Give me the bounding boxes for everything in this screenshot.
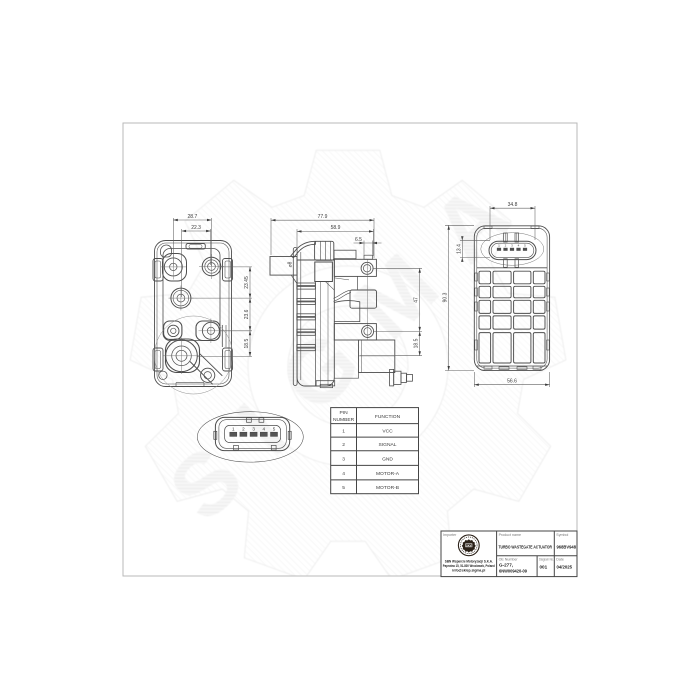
- svg-text:18.5: 18.5: [414, 338, 420, 348]
- svg-text:4: 4: [263, 426, 266, 431]
- svg-text:13.4: 13.4: [456, 244, 462, 254]
- svg-text:GND: GND: [382, 456, 393, 462]
- svg-text:1: 1: [232, 426, 235, 431]
- svg-text:Date: Date: [556, 558, 564, 562]
- svg-text:MOTOR-B: MOTOR-B: [376, 485, 399, 491]
- svg-text:968BV948: 968BV948: [557, 545, 577, 550]
- svg-text:77.9: 77.9: [318, 214, 328, 220]
- svg-text:Importer: Importer: [443, 533, 457, 537]
- svg-text:1: 1: [342, 429, 345, 435]
- svg-text:Symbol: Symbol: [556, 533, 568, 537]
- svg-text:SBN Wsparcie Motoryzacji S.K.A: SBN Wsparcie Motoryzacji S.K.A.: [445, 560, 493, 564]
- svg-text:3: 3: [252, 426, 255, 431]
- svg-text:PIN: PIN: [340, 410, 349, 416]
- svg-text:SIGNAL: SIGNAL: [379, 442, 397, 448]
- svg-text:6NW009420-09: 6NW009420-09: [499, 569, 527, 574]
- svg-text:001: 001: [540, 565, 548, 570]
- svg-text:90.3: 90.3: [443, 292, 449, 302]
- svg-text:Paprotna 15, 51-800 Wroclawek,: Paprotna 15, 51-800 Wroclawek, Poland: [443, 564, 495, 568]
- svg-text:04/2025: 04/2025: [557, 565, 573, 570]
- svg-text:TURBO WASTEGATE ACTUATOR: TURBO WASTEGATE ACTUATOR: [499, 545, 553, 550]
- svg-text:5: 5: [342, 485, 345, 491]
- svg-text:58.9: 58.9: [331, 225, 341, 231]
- svg-text:34.8: 34.8: [508, 202, 518, 208]
- svg-text:5: 5: [273, 426, 276, 431]
- svg-text:VCC: VCC: [382, 429, 393, 435]
- svg-text:info@sklep.sigma.pl: info@sklep.sigma.pl: [452, 569, 485, 573]
- svg-text:22.3: 22.3: [191, 225, 201, 231]
- svg-text:2: 2: [342, 442, 345, 448]
- svg-text:NUMBER: NUMBER: [333, 417, 355, 423]
- svg-text:4: 4: [342, 471, 345, 477]
- svg-text:⌀8: ⌀8: [288, 261, 294, 267]
- svg-text:47: 47: [414, 297, 420, 303]
- svg-text:23.45: 23.45: [244, 276, 250, 289]
- svg-text:SKV: SKV: [466, 544, 472, 548]
- svg-text:56.6: 56.6: [507, 379, 517, 385]
- svg-text:Diagram No.: Diagram No.: [539, 558, 554, 562]
- svg-text:28.7: 28.7: [188, 214, 198, 220]
- svg-text:23.6: 23.6: [244, 309, 250, 319]
- svg-text:6.5: 6.5: [355, 237, 362, 243]
- svg-text:OE Number: OE Number: [499, 558, 519, 562]
- svg-text:MOTOR-A: MOTOR-A: [376, 471, 400, 477]
- svg-text:FUNCTION: FUNCTION: [375, 414, 401, 420]
- svg-text:G-277,: G-277,: [499, 563, 513, 568]
- svg-text:18.5: 18.5: [244, 339, 250, 349]
- svg-text:3: 3: [342, 456, 345, 462]
- svg-text:Product name: Product name: [499, 533, 521, 537]
- svg-text:2: 2: [242, 426, 245, 431]
